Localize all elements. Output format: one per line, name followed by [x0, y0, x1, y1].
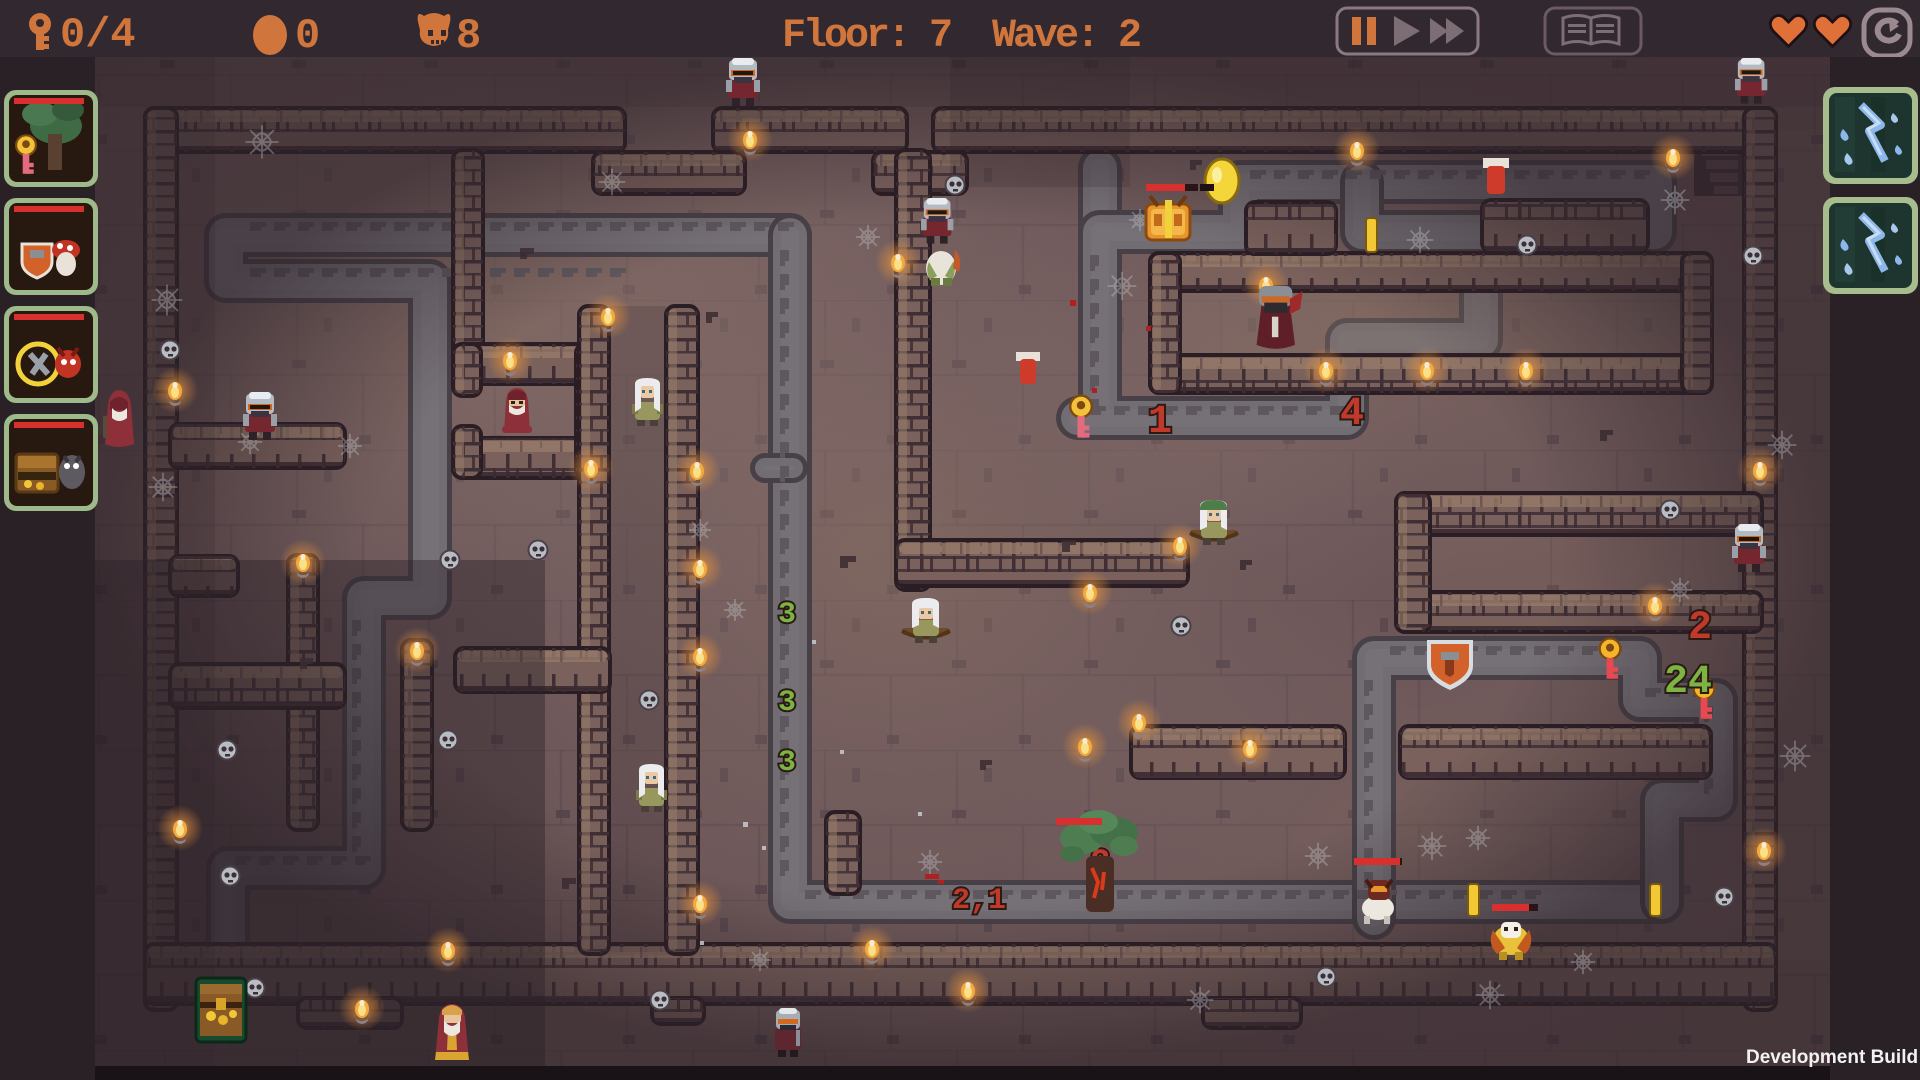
svg-text:2,1: 2,1	[952, 884, 1006, 918]
svg-text:1: 1	[1148, 400, 1172, 445]
svg-text:8: 8	[456, 12, 481, 60]
svg-text:3: 3	[778, 598, 796, 632]
svg-text:Wave: 2: Wave: 2	[992, 14, 1140, 59]
svg-text:0/4: 0/4	[60, 11, 136, 59]
svg-text:3: 3	[778, 746, 796, 780]
svg-text:Development Build: Development Build	[1746, 1047, 1918, 1068]
svg-text:3: 3	[778, 686, 796, 720]
svg-text:0: 0	[295, 12, 320, 60]
svg-text:Floor: 7: Floor: 7	[782, 14, 951, 59]
svg-text:4: 4	[1340, 392, 1364, 437]
svg-text:24: 24	[1664, 660, 1712, 705]
svg-text:2: 2	[1688, 606, 1712, 651]
